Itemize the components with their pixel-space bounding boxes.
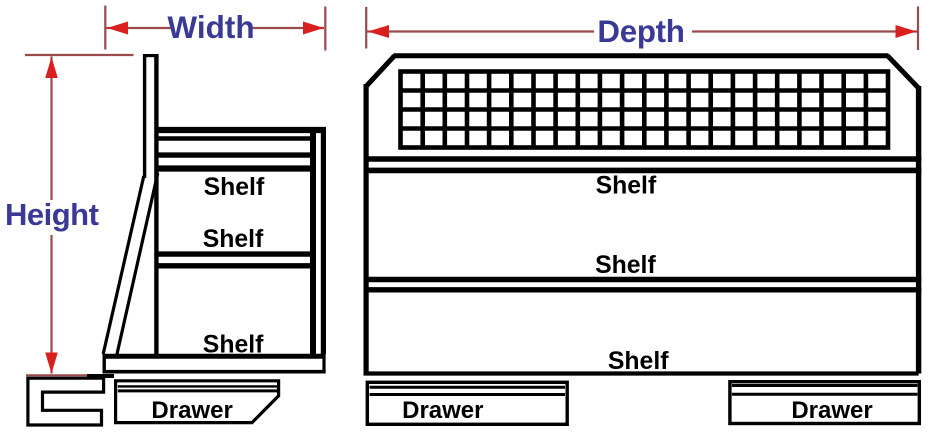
svg-text:Width: Width <box>167 9 254 45</box>
svg-text:Height: Height <box>5 197 99 232</box>
svg-text:Shelf: Shelf <box>608 348 669 375</box>
svg-text:Shelf: Shelf <box>203 331 264 358</box>
svg-text:Shelf: Shelf <box>203 226 264 253</box>
svg-text:Shelf: Shelf <box>596 173 657 200</box>
svg-text:Depth: Depth <box>597 14 684 49</box>
svg-text:Drawer: Drawer <box>151 397 232 424</box>
svg-text:Drawer: Drawer <box>402 397 483 424</box>
svg-text:Shelf: Shelf <box>595 252 656 279</box>
svg-text:Drawer: Drawer <box>791 397 872 424</box>
svg-text:Shelf: Shelf <box>204 174 265 201</box>
